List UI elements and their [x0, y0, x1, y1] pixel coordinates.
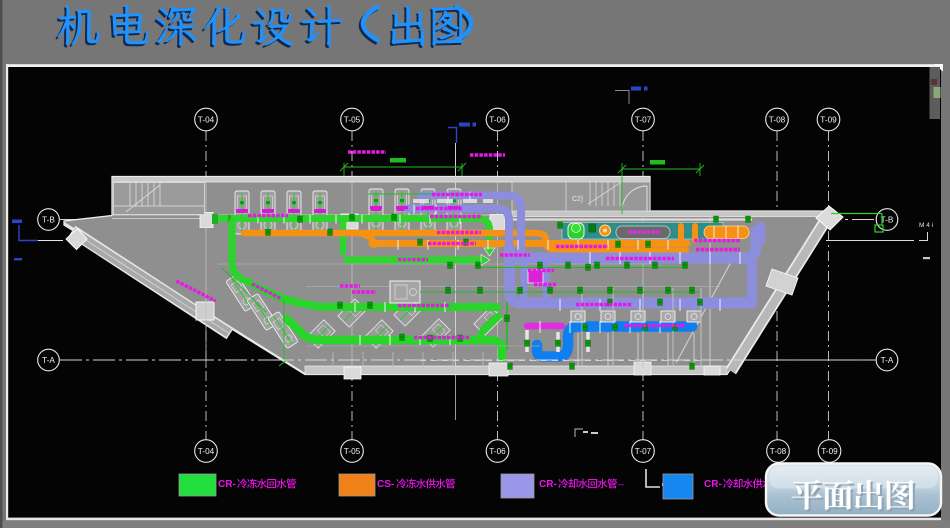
svg-text:M 4 i: M 4 i: [919, 222, 933, 229]
svg-text:T-04: T-04: [198, 116, 215, 125]
svg-text:CR-: CR-: [218, 479, 236, 490]
svg-text:C2]: C2]: [572, 196, 583, 203]
svg-text:CR-: CR-: [704, 479, 722, 490]
svg-text:T-07: T-07: [635, 447, 652, 456]
svg-text:--: --: [618, 480, 624, 490]
svg-text:T-B: T-B: [881, 216, 894, 225]
svg-text:T-06: T-06: [489, 447, 506, 456]
svg-text:T-09: T-09: [820, 116, 837, 125]
svg-text:CR-: CR-: [539, 479, 557, 490]
svg-text:T-08: T-08: [769, 116, 786, 125]
svg-text:T-09: T-09: [821, 447, 838, 456]
svg-text:CS-: CS-: [377, 479, 394, 490]
svg-text:T-04: T-04: [198, 447, 215, 456]
svg-text:T-B: T-B: [42, 216, 55, 225]
svg-text:T-07: T-07: [635, 116, 652, 125]
svg-text:T-A: T-A: [42, 356, 55, 365]
svg-text:T-A: T-A: [881, 356, 894, 365]
svg-text:T-05: T-05: [344, 116, 361, 125]
svg-text:T-06: T-06: [489, 116, 506, 125]
svg-text:T-05: T-05: [344, 447, 361, 456]
svg-text:T-08: T-08: [770, 447, 787, 456]
